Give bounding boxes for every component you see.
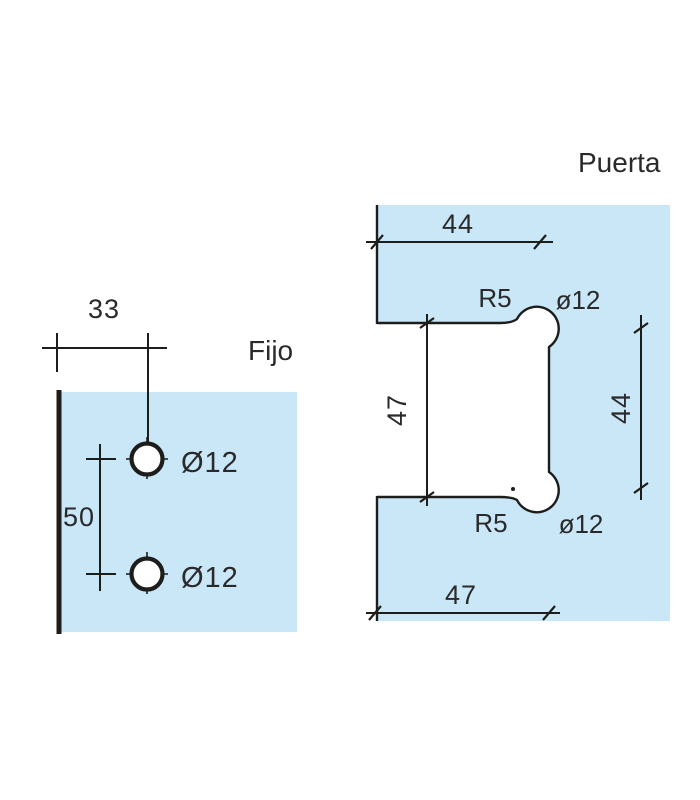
fijo-glass-panel (61, 392, 297, 632)
puerta-dim-bottom-47-label: 47 (445, 580, 477, 610)
fijo-drawing: 33 50 Ø12 Ø12 Fijo (42, 294, 297, 634)
puerta-hole-bottom-label: ø12 (559, 509, 604, 539)
fijo-dim-33-label: 33 (88, 294, 120, 324)
fijo-dim-50-label: 50 (63, 502, 95, 532)
radius-center-mark (511, 487, 515, 491)
puerta-title: Puerta (578, 147, 661, 178)
fijo-hole-top-label: Ø12 (181, 447, 239, 479)
puerta-radius-bottom-label: R5 (474, 508, 507, 538)
drawing-canvas: 33 50 Ø12 Ø12 Fijo Puerta (0, 0, 700, 800)
fijo-hole-bottom-label: Ø12 (181, 562, 239, 594)
fijo-title: Fijo (248, 335, 293, 366)
technical-drawing: 33 50 Ø12 Ø12 Fijo Puerta (0, 0, 700, 800)
puerta-drawing: Puerta 44 47 44 (366, 147, 670, 621)
puerta-dim-47-vertical-label: 47 (382, 394, 412, 426)
puerta-radius-top-label: R5 (478, 283, 511, 313)
puerta-dim-44-vertical-label: 44 (606, 392, 636, 424)
puerta-dim-top-44-label: 44 (442, 209, 474, 239)
puerta-hole-top-label: ø12 (556, 285, 601, 315)
drill-hole (132, 559, 163, 590)
drill-hole (132, 444, 163, 475)
